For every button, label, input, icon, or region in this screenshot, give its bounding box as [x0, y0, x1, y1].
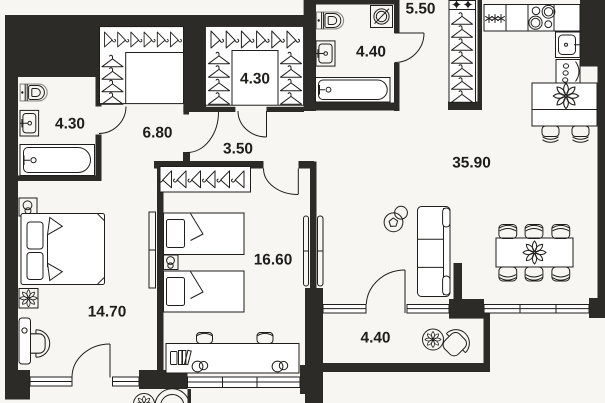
- svg-text:16.60: 16.60: [254, 252, 293, 269]
- svg-text:4.30: 4.30: [55, 116, 85, 133]
- svg-text:4.40: 4.40: [361, 330, 391, 347]
- svg-text:4.30: 4.30: [240, 71, 270, 88]
- svg-text:4.40: 4.40: [356, 44, 386, 61]
- svg-text:14.70: 14.70: [88, 304, 127, 321]
- svg-text:6.80: 6.80: [143, 125, 173, 142]
- svg-text:5.50: 5.50: [406, 1, 436, 18]
- svg-text:35.90: 35.90: [452, 155, 491, 172]
- svg-text:3.50: 3.50: [223, 141, 253, 158]
